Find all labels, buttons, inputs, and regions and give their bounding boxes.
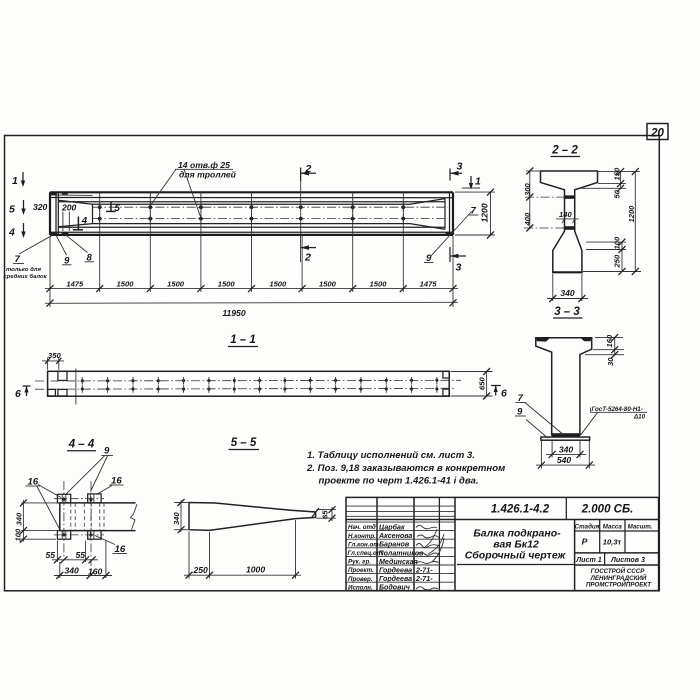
svg-text:Листов 3: Листов 3 bbox=[610, 556, 645, 564]
svg-text:150: 150 bbox=[613, 167, 622, 180]
svg-text:1500: 1500 bbox=[319, 280, 337, 289]
svg-text:250: 250 bbox=[193, 565, 209, 575]
svg-text:Бодович: Бодович bbox=[379, 584, 410, 592]
svg-text:Мединская: Мединская bbox=[379, 558, 419, 566]
svg-text:1475: 1475 bbox=[66, 280, 84, 289]
svg-text:Δ10: Δ10 bbox=[633, 414, 646, 421]
svg-text:ГОССТРОЙ СССР: ГОССТРОЙ СССР bbox=[591, 567, 646, 575]
svg-text:Баранов: Баранов bbox=[379, 541, 410, 549]
svg-text:1500: 1500 bbox=[218, 280, 236, 289]
svg-text:Гордеева: Гордеева bbox=[379, 567, 412, 575]
svg-text:1200: 1200 bbox=[627, 205, 636, 223]
svg-text:только для: только для bbox=[6, 267, 41, 273]
svg-text:средних балок: средних балок bbox=[4, 273, 48, 280]
svg-text:250: 250 bbox=[613, 254, 622, 268]
svg-text:650: 650 bbox=[478, 377, 487, 390]
svg-text:340: 340 bbox=[560, 288, 575, 298]
svg-text:1.426.1-4.2: 1.426.1-4.2 bbox=[491, 504, 550, 516]
svg-text:Царбак: Царбак bbox=[379, 524, 405, 532]
svg-text:ПРОМСТРОЙПРОЕКТ: ПРОМСТРОЙПРОЕКТ bbox=[586, 580, 652, 588]
svg-text:140: 140 bbox=[559, 210, 572, 219]
svg-text:340: 340 bbox=[172, 512, 181, 525]
svg-text:Гл.кон.от: Гл.кон.от bbox=[348, 541, 379, 548]
svg-text:400: 400 bbox=[523, 212, 532, 226]
svg-text:4: 4 bbox=[81, 216, 88, 227]
svg-text:Гордеева: Гордеева bbox=[379, 575, 412, 583]
svg-text:2. Поз. 9,18 заказываются в ко: 2. Поз. 9,18 заказываются в конкретном bbox=[306, 463, 505, 474]
svg-text:340: 340 bbox=[14, 512, 23, 525]
svg-text:Гл.спец.от: Гл.спец.от bbox=[348, 550, 383, 557]
svg-text:2.000 СБ.: 2.000 СБ. bbox=[581, 504, 634, 516]
svg-text:Провер.: Провер. bbox=[348, 576, 373, 583]
svg-text:Нач. отд: Нач. отд bbox=[348, 524, 376, 531]
svg-text:4: 4 bbox=[8, 227, 15, 239]
svg-text:20: 20 bbox=[650, 128, 664, 140]
svg-text:1: 1 bbox=[12, 175, 18, 187]
svg-text:Р: Р bbox=[582, 537, 588, 547]
svg-text:55: 55 bbox=[46, 550, 56, 560]
svg-text:Сборочный чертеж: Сборочный чертеж bbox=[465, 550, 567, 562]
svg-text:100: 100 bbox=[613, 236, 622, 249]
svg-text:2 – 2: 2 – 2 bbox=[551, 145, 578, 157]
svg-text:1. Таблицу исполнений см. лис: 1. Таблицу исполнений см. лист 3. bbox=[307, 450, 475, 461]
svg-text:Стадия: Стадия bbox=[575, 524, 600, 531]
svg-text:для троллей: для троллей bbox=[179, 169, 237, 179]
svg-text:320: 320 bbox=[33, 202, 48, 212]
svg-text:540: 540 bbox=[557, 455, 572, 465]
svg-text:50: 50 bbox=[613, 189, 622, 198]
svg-text:проекте по черт 1.426.1-41 і д: проекте по черт 1.426.1-41 і два. bbox=[319, 475, 479, 486]
svg-text:3: 3 bbox=[457, 161, 463, 173]
svg-text:11950: 11950 bbox=[222, 308, 245, 318]
svg-text:1200: 1200 bbox=[480, 203, 490, 222]
svg-text:100: 100 bbox=[13, 528, 22, 541]
svg-text:2: 2 bbox=[304, 252, 311, 264]
svg-text:Н.контр.: Н.контр. bbox=[348, 533, 376, 540]
svg-text:Масса: Масса bbox=[603, 524, 623, 531]
svg-text:200: 200 bbox=[61, 203, 77, 213]
svg-text:Полатников: Полатников bbox=[379, 549, 425, 557]
svg-text:9: 9 bbox=[104, 446, 110, 457]
svg-text:1475: 1475 bbox=[420, 280, 438, 289]
svg-text:160: 160 bbox=[605, 334, 614, 347]
svg-text:Проект.: Проект. bbox=[348, 567, 374, 574]
svg-text:1500: 1500 bbox=[269, 280, 287, 289]
svg-text:2-71-: 2-71- bbox=[415, 575, 433, 583]
svg-text:1 – 1: 1 – 1 bbox=[230, 334, 256, 346]
svg-text:3: 3 bbox=[456, 262, 462, 274]
svg-text:2-71-: 2-71- bbox=[415, 566, 433, 574]
svg-text:65: 65 bbox=[321, 510, 330, 519]
svg-text:1500: 1500 bbox=[370, 280, 388, 289]
svg-text:6: 6 bbox=[501, 388, 507, 400]
svg-text:5: 5 bbox=[9, 204, 15, 216]
svg-text:1500: 1500 bbox=[167, 280, 185, 289]
svg-text:6: 6 bbox=[15, 388, 21, 400]
svg-text:4 – 4: 4 – 4 bbox=[68, 439, 95, 451]
svg-text:Аксенова: Аксенова bbox=[378, 532, 412, 540]
svg-text:1: 1 bbox=[475, 176, 481, 188]
svg-text:160: 160 bbox=[88, 567, 103, 577]
svg-text:5 – 5: 5 – 5 bbox=[231, 437, 257, 449]
svg-text:55: 55 bbox=[76, 550, 86, 560]
svg-text:1500: 1500 bbox=[117, 280, 135, 289]
svg-text:Рук. гр.: Рук. гр. bbox=[348, 559, 371, 566]
svg-text:1000: 1000 bbox=[246, 564, 265, 574]
svg-text:Масшт.: Масшт. bbox=[628, 524, 653, 531]
svg-text:30: 30 bbox=[606, 357, 615, 366]
svg-text:10,3т: 10,3т bbox=[603, 538, 622, 547]
svg-text:340: 340 bbox=[559, 444, 574, 454]
svg-text:350: 350 bbox=[48, 351, 61, 360]
svg-text:340: 340 bbox=[65, 566, 80, 576]
svg-text:300: 300 bbox=[523, 183, 532, 196]
svg-text:3 – 3: 3 – 3 bbox=[554, 306, 580, 318]
svg-text:Исполн.: Исполн. bbox=[348, 584, 373, 591]
svg-text:Лист 1: Лист 1 bbox=[575, 556, 601, 564]
svg-text:5: 5 bbox=[115, 203, 121, 214]
svg-text:2: 2 bbox=[305, 163, 312, 175]
